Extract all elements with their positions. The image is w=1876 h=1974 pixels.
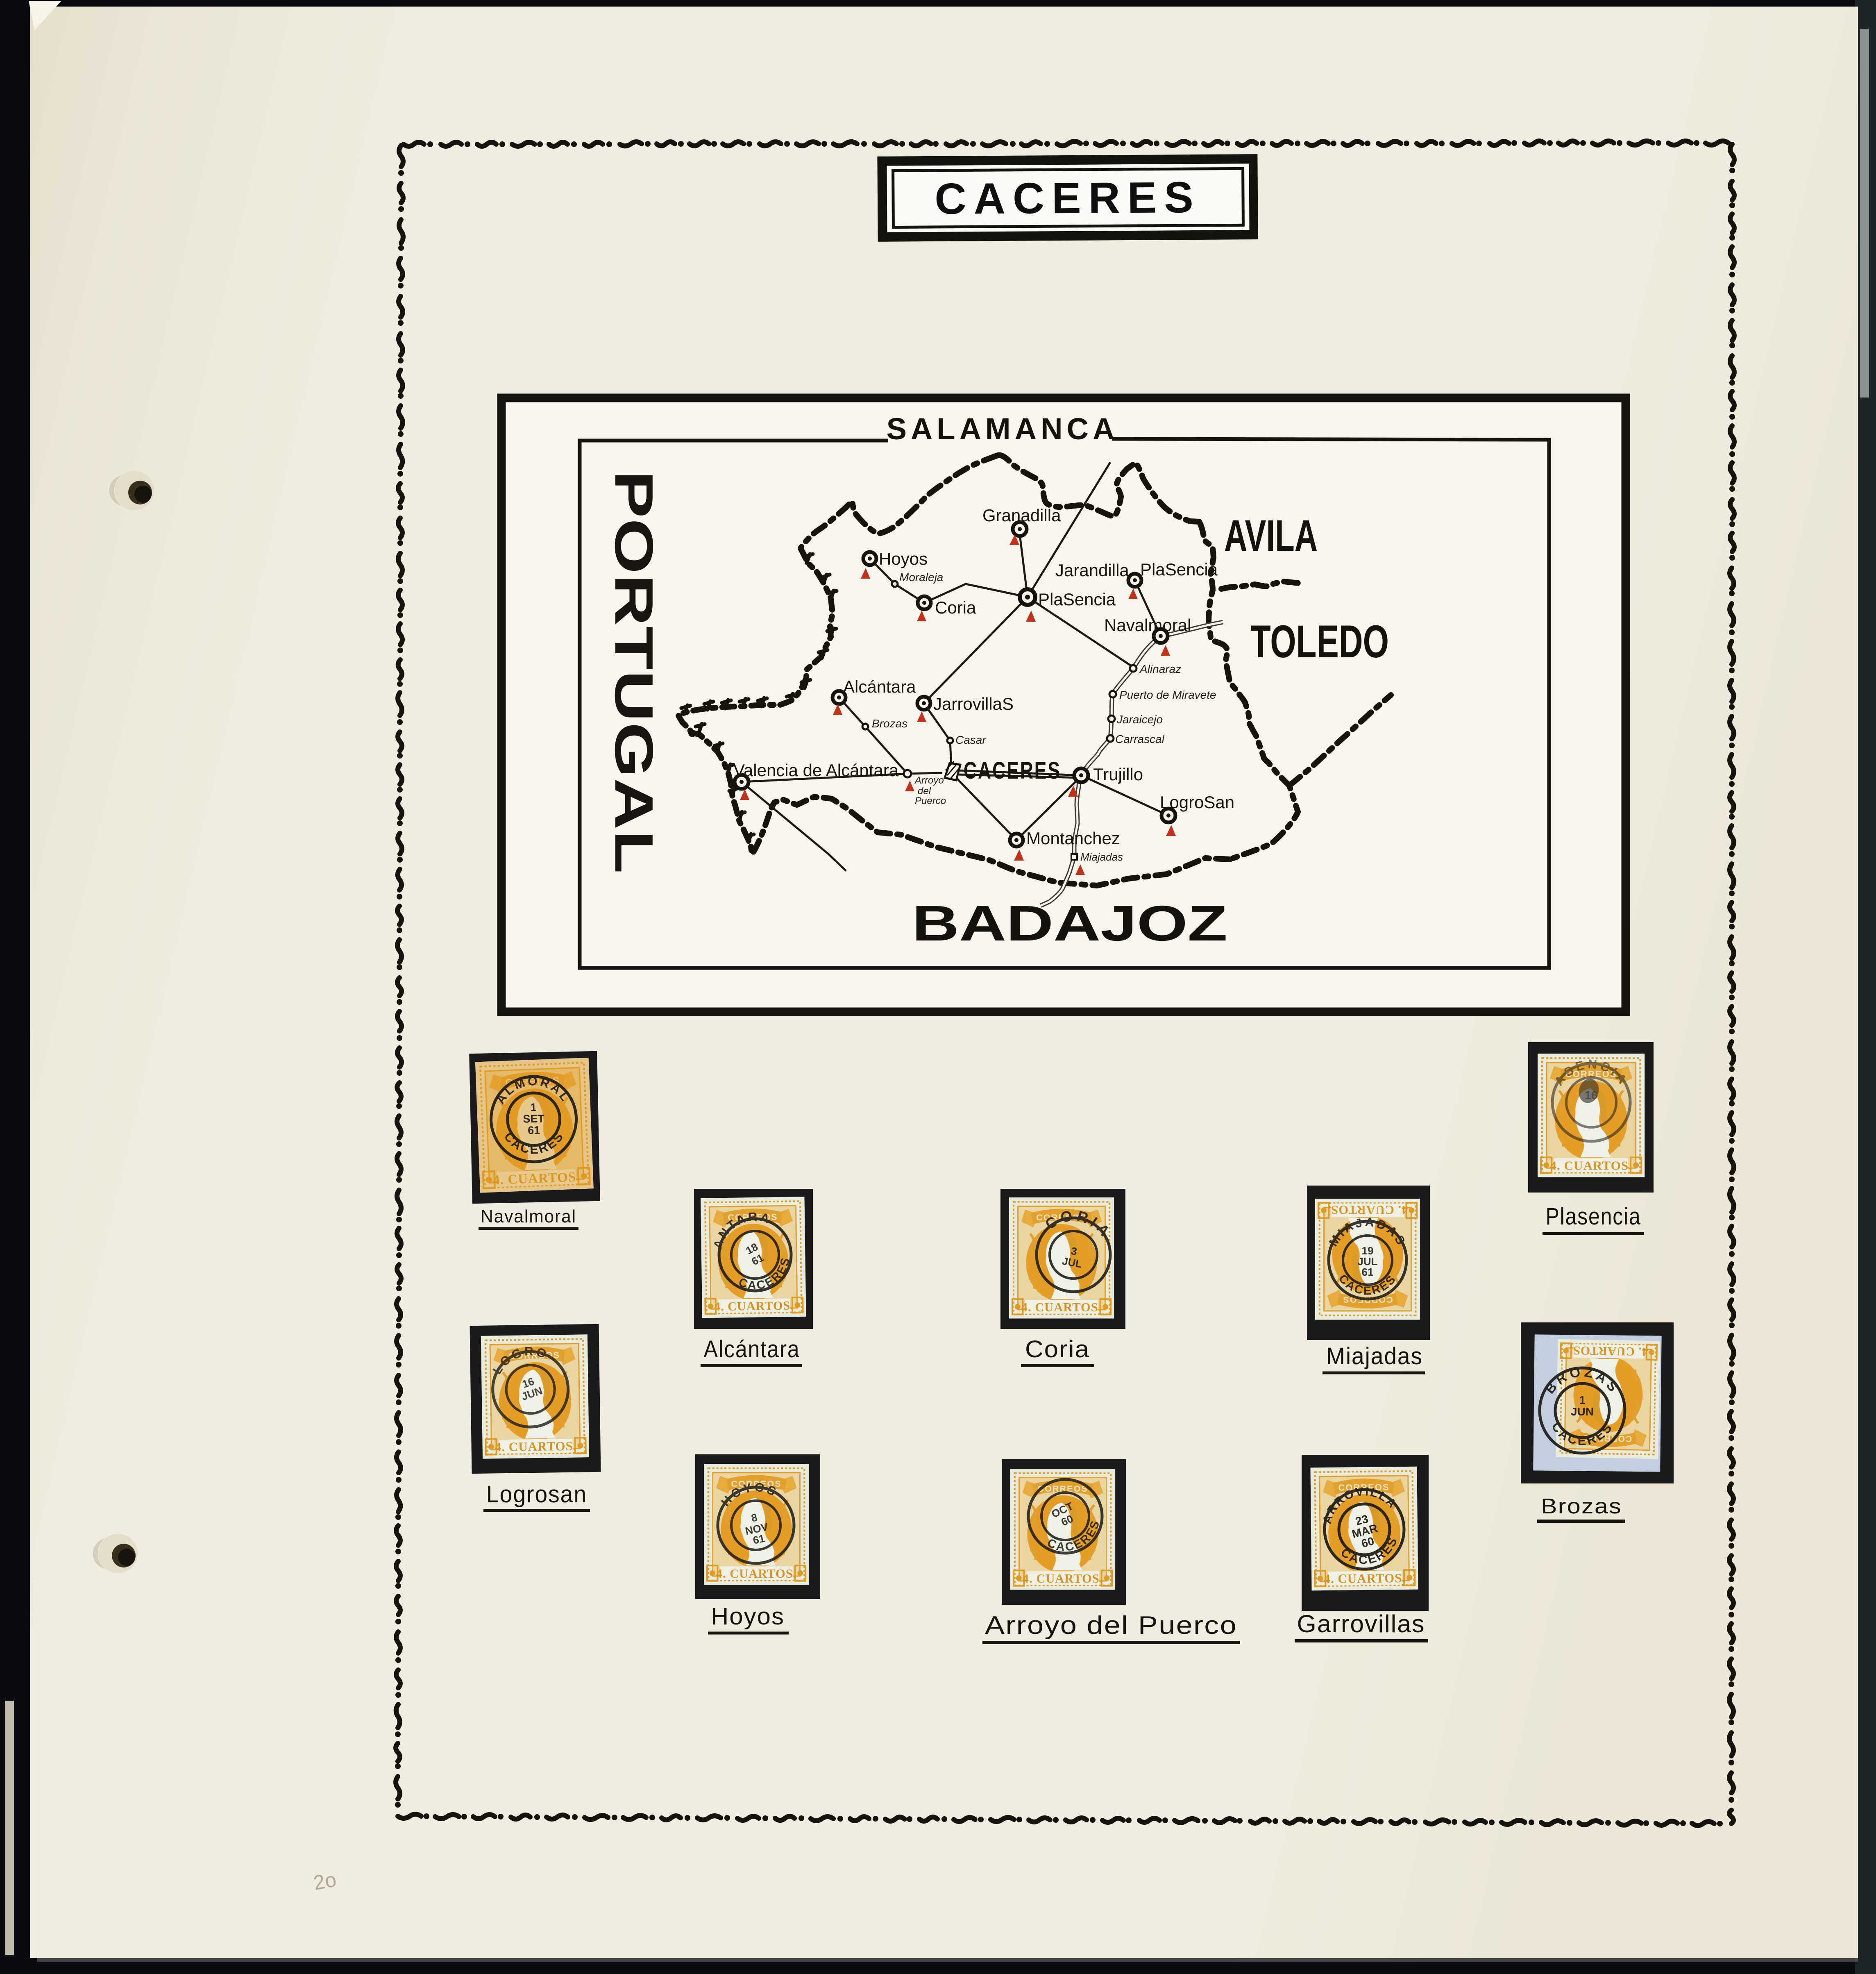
svg-text:Miajadas: Miajadas [1080,851,1123,863]
svg-text:1: 1 [530,1101,537,1113]
svg-text:Valencia de Alcántara: Valencia de Alcántara [733,761,899,780]
svg-text:Navalmoral: Navalmoral [1104,616,1191,635]
svg-text:Miajadas: Miajadas [1326,1343,1423,1370]
svg-text:LogroSan: LogroSan [1160,793,1234,812]
svg-text:Alinaraz: Alinaraz [1139,663,1181,675]
svg-text:Trujillo: Trujillo [1093,765,1143,784]
svg-text:SALAMANCA: SALAMANCA [887,412,1119,446]
svg-text:CACERES: CACERES [964,757,1061,784]
svg-text:Plasencia: Plasencia [1546,1203,1641,1230]
svg-text:TOLEDO: TOLEDO [1250,616,1389,667]
svg-text:Jarandilla: Jarandilla [1055,561,1129,580]
svg-text:Casar: Casar [955,734,987,746]
svg-text:Puerco: Puerco [915,795,946,806]
svg-text:Arroyo del Puerco: Arroyo del Puerco [985,1611,1237,1640]
svg-text:Garrovillas: Garrovillas [1297,1610,1425,1638]
svg-text:Jaraicejo: Jaraicejo [1116,713,1163,726]
svg-text:Puerto de Miravete: Puerto de Miravete [1119,688,1216,701]
svg-text:SET: SET [523,1112,545,1125]
svg-text:Granadilla: Granadilla [982,506,1061,525]
svg-text:Alcántara: Alcántara [704,1336,800,1363]
svg-text:AVILA: AVILA [1224,511,1318,560]
svg-text:Coria: Coria [935,598,976,617]
svg-text:PORTUGAL: PORTUGAL [604,470,664,874]
svg-text:61: 61 [752,1532,766,1547]
svg-text:Montanchez: Montanchez [1026,829,1120,848]
svg-text:del: del [918,786,931,797]
svg-text:BADAJOZ: BADAJOZ [912,895,1227,951]
svg-text:JarrovillaS: JarrovillaS [933,694,1014,713]
svg-text:1: 1 [1579,1394,1586,1406]
svg-text:Hoyos: Hoyos [711,1603,785,1630]
svg-text:2o: 2o [312,1868,338,1894]
svg-text:Coria: Coria [1025,1336,1090,1363]
svg-text:Alcántara: Alcántara [843,677,916,696]
svg-text:Moraleja: Moraleja [899,571,943,584]
svg-text:JUN: JUN [1571,1405,1594,1418]
svg-text:Navalmoral: Navalmoral [481,1206,576,1227]
svg-text:Carrascal: Carrascal [1115,733,1165,745]
svg-text:61: 61 [1362,1266,1374,1278]
svg-text:PlaSencia: PlaSencia [1038,590,1116,609]
svg-text:61: 61 [528,1124,540,1137]
svg-text:Logrosan: Logrosan [486,1481,587,1508]
svg-text:Arroyo: Arroyo [914,775,944,786]
svg-text:Brozas: Brozas [1541,1495,1622,1518]
svg-text:PlaSencia: PlaSencia [1140,560,1218,579]
svg-text:Brozas: Brozas [872,717,907,730]
svg-text:CACERES: CACERES [935,173,1201,223]
svg-text:Hoyos: Hoyos [879,549,928,568]
